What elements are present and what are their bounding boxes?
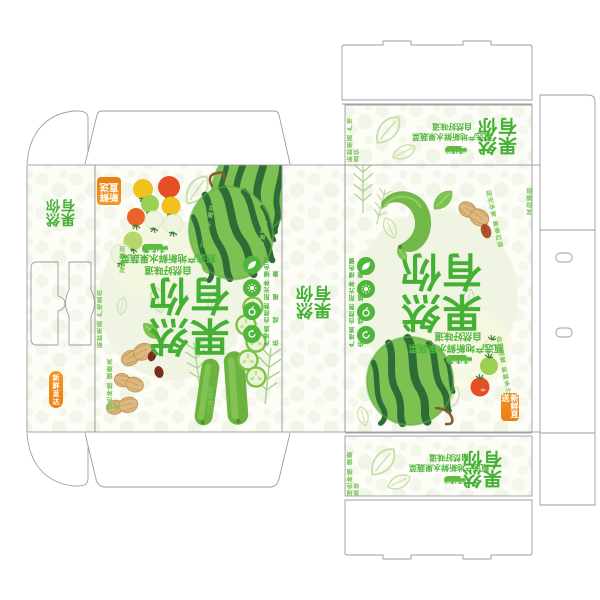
recycle-icon (243, 325, 261, 343)
front-feature-label-1: 绿色健康 (263, 255, 281, 277)
back-title-logo: 果然有你 (398, 250, 484, 332)
back-feature-label-1: 绿色健康 (348, 256, 366, 278)
middle-strip-logo: 果然有你 (294, 283, 332, 318)
bottom-strip-vertical-text: 绿色种植 健康美味 (348, 446, 361, 496)
front-feature-label-4: 产地直供 (263, 324, 281, 346)
packaging-dieline: 果然有你 新鲜直达 新鲜直送 新鲜果蔬 产地直供 绿色种植 健康美味 现摘现发 … (0, 0, 600, 600)
back-corner-badge: 新鲜直送 (501, 393, 519, 421)
front-corner-badge: 新鲜直送 (97, 177, 121, 205)
front-cucumber-vertical-text: 甜脆爽口 (205, 386, 212, 416)
bottom-strip-logo: 果然有你 (461, 448, 503, 487)
side-pill-badge: 新鲜直达 (49, 371, 63, 408)
sun-icon (243, 279, 261, 297)
front-corner-badge-text: 新鲜直送 (99, 181, 120, 202)
side-strip-logo: 果然有你 (44, 197, 76, 226)
back-feature-label-4: 产地直供 (348, 325, 366, 347)
side-pill-text: 新鲜直达 (51, 374, 61, 406)
front-peanut-vertical-text: 绿色种植 健康美味 (108, 352, 121, 410)
back-feature-label-3: 自然熟成 (348, 302, 366, 324)
top-strip-vertical-text: 新鲜果蔬 产地直供 (348, 112, 361, 162)
back-feature-label-2: 阳光种植 (348, 279, 366, 301)
front-edge-vertical-text: 新鲜果蔬 产地直供 (98, 286, 105, 348)
back-corner-badge-text: 新鲜直送 (501, 394, 519, 420)
front-title-logo: 果然有你 (146, 274, 232, 356)
front-feature-label-3: 自然熟成 (263, 301, 281, 323)
front-feature-label-2: 阳光种植 (263, 278, 281, 300)
leaf-icon (243, 256, 261, 274)
top-strip-logo: 果然有你 (476, 115, 518, 154)
top-strip-tag-pill: 新鲜采摘 (445, 146, 467, 154)
back-edge-vertical-text: 现摘现发 (524, 188, 531, 244)
back-tag-pill: 新鲜采摘 (446, 355, 472, 364)
fruit-icon (243, 302, 261, 320)
